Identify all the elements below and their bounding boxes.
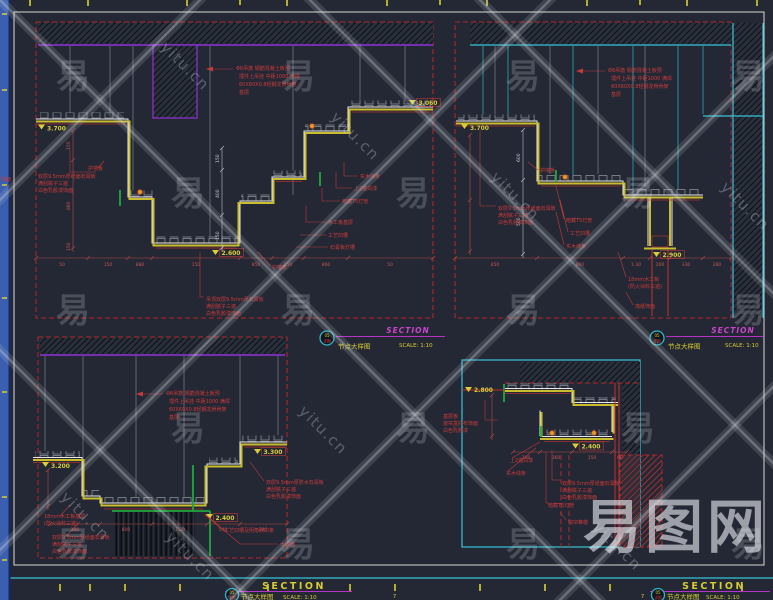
note: 60X60X0.8轻钢龙骨骨架 [611, 83, 669, 90]
note: 墙纸饰面 [635, 303, 655, 310]
title-cn: 节点大样图 [668, 342, 701, 351]
cove-lamp-icon [592, 431, 597, 436]
level-mark: 2.400 [582, 444, 601, 451]
note: Φ8吊筋 钢筋混凝土板预 [166, 390, 220, 397]
note: 白色乳胶漆 [443, 427, 468, 434]
svg-text:详图: 详图 [654, 595, 662, 600]
note: 基层 [239, 89, 249, 96]
svg-text:易: 易 [396, 174, 430, 214]
svg-text:200: 200 [656, 262, 665, 268]
svg-text:1.30: 1.30 [631, 262, 641, 268]
note: 满刮腻子三遍 [206, 303, 236, 310]
cad-canvas: 7 7 饰面 3.700 2.600 3.060 50 [0, 0, 773, 600]
svg-text:860: 860 [322, 262, 331, 268]
svg-text:150: 150 [215, 154, 221, 163]
svg-text:50: 50 [59, 262, 65, 268]
left-ruler-strip [0, 0, 10, 600]
svg-text:易: 易 [56, 57, 90, 97]
svg-text:详图: 详图 [323, 339, 331, 344]
note: 18mm木工板 [628, 276, 659, 283]
svg-text:330: 330 [682, 262, 691, 268]
title-cn: 节点大样图 [667, 592, 700, 600]
svg-text:易: 易 [281, 57, 315, 97]
svg-text:易: 易 [396, 409, 430, 449]
level-mark: 2.800 [474, 387, 493, 394]
note: 埋件上吊挂 中距1000 满焊 [169, 398, 230, 405]
svg-text:400: 400 [215, 189, 221, 198]
note: 工艺凹槽 [570, 230, 590, 237]
cad-drawing-viewport: 7 7 饰面 3.700 2.600 3.060 50 [0, 0, 773, 600]
svg-text:60: 60 [617, 455, 623, 461]
svg-text:150: 150 [588, 455, 597, 461]
svg-text:150: 150 [192, 262, 201, 268]
note: Φ8吊筋 钢筋混凝土板预 [608, 67, 662, 74]
note: 实木线条 [506, 470, 526, 477]
svg-text:800: 800 [122, 527, 131, 533]
note: 暗藏T5灯管 [566, 217, 592, 224]
note: 双层9.5mm厚纸面石膏板 [38, 173, 96, 180]
note: 护墙板 [540, 167, 555, 174]
svg-text:360: 360 [552, 455, 561, 461]
level-mark: 2.600 [222, 250, 241, 257]
note: 白色乳胶漆饰面 [266, 493, 301, 500]
svg-text:易: 易 [621, 174, 655, 214]
note: 满刮腻子三遍 [38, 180, 68, 187]
title-scale: SCALE: 1:10 [706, 595, 740, 600]
svg-text:易: 易 [621, 409, 655, 449]
svg-text:150: 150 [66, 141, 72, 150]
svg-text:05: 05 [654, 333, 660, 338]
note: 工艺凹槽及阴角收口条 [224, 527, 274, 534]
svg-text:易: 易 [56, 291, 90, 331]
svg-text:150: 150 [104, 262, 113, 268]
svg-text:易: 易 [731, 57, 765, 97]
note: 双层9.5mm厚纸面石膏板 [562, 480, 620, 487]
svg-text:880: 880 [66, 201, 72, 210]
svg-text:600: 600 [516, 153, 522, 162]
note: 白色乳胶漆饰面 [38, 187, 73, 194]
svg-text:易: 易 [281, 525, 315, 565]
bottom-ruler-number: 7 [641, 594, 644, 600]
note: 窗帘盒扪布饰面 [443, 420, 478, 427]
note: 基层板 [443, 413, 458, 420]
svg-text:易: 易 [506, 525, 540, 565]
concrete-slab-hatch [520, 362, 640, 382]
title-scale: SCALE: 1:10 [399, 343, 433, 349]
note: 暗藏T5灯管 [548, 502, 574, 509]
level-mark: 3.300 [264, 449, 283, 456]
svg-text:易: 易 [506, 57, 540, 97]
cove-lamp-icon [310, 124, 315, 129]
svg-text:易: 易 [506, 291, 540, 331]
level-mark: 2.400 [216, 515, 235, 522]
title-scale: SCALE: 1:10 [725, 343, 759, 349]
svg-text:易: 易 [281, 291, 315, 331]
level-mark: 3.700 [470, 125, 489, 132]
note: (防火涂料三遍) [628, 283, 662, 290]
concrete-slab-hatch [40, 338, 285, 354]
svg-text:280: 280 [713, 262, 722, 268]
note: 埋件上吊挂 中距1000 满焊 [611, 75, 672, 82]
note: 基层 [611, 91, 621, 98]
svg-text:850: 850 [491, 262, 500, 268]
note: 护墙板 [88, 165, 103, 172]
note: 上2遍白漆 [510, 457, 533, 464]
svg-text:880: 880 [136, 262, 145, 268]
svg-text:150: 150 [215, 231, 221, 240]
svg-text:易: 易 [731, 291, 765, 331]
svg-text:50: 50 [387, 262, 393, 268]
brand-logo: 易图网 [583, 493, 769, 561]
bottom-ruler-number: 7 [393, 594, 396, 600]
cove-lamp-icon [138, 190, 143, 195]
title-scale: SCALE: 1:10 [283, 595, 317, 600]
concrete-slab-hatch [38, 23, 433, 44]
title-en: SECTION [682, 581, 746, 592]
svg-text:易: 易 [171, 409, 205, 449]
title-en: SECTION [262, 581, 326, 592]
note: 满刮腻子三遍 [266, 486, 296, 493]
clipped-left-note: 饰面 [1, 176, 11, 183]
svg-text:150: 150 [66, 242, 72, 251]
level-mark: 3.200 [51, 463, 70, 470]
note: 石膏板灯槽 [330, 244, 355, 251]
svg-text:易: 易 [56, 525, 90, 565]
cove-lamp-icon [550, 431, 555, 436]
cove-lamp-icon [563, 175, 568, 180]
svg-text:易: 易 [171, 174, 205, 214]
title-en: SECTION [386, 326, 430, 335]
note: 双层9.5mm厚防水石膏板 [266, 479, 324, 486]
note: 工艺凹槽 [328, 232, 348, 239]
